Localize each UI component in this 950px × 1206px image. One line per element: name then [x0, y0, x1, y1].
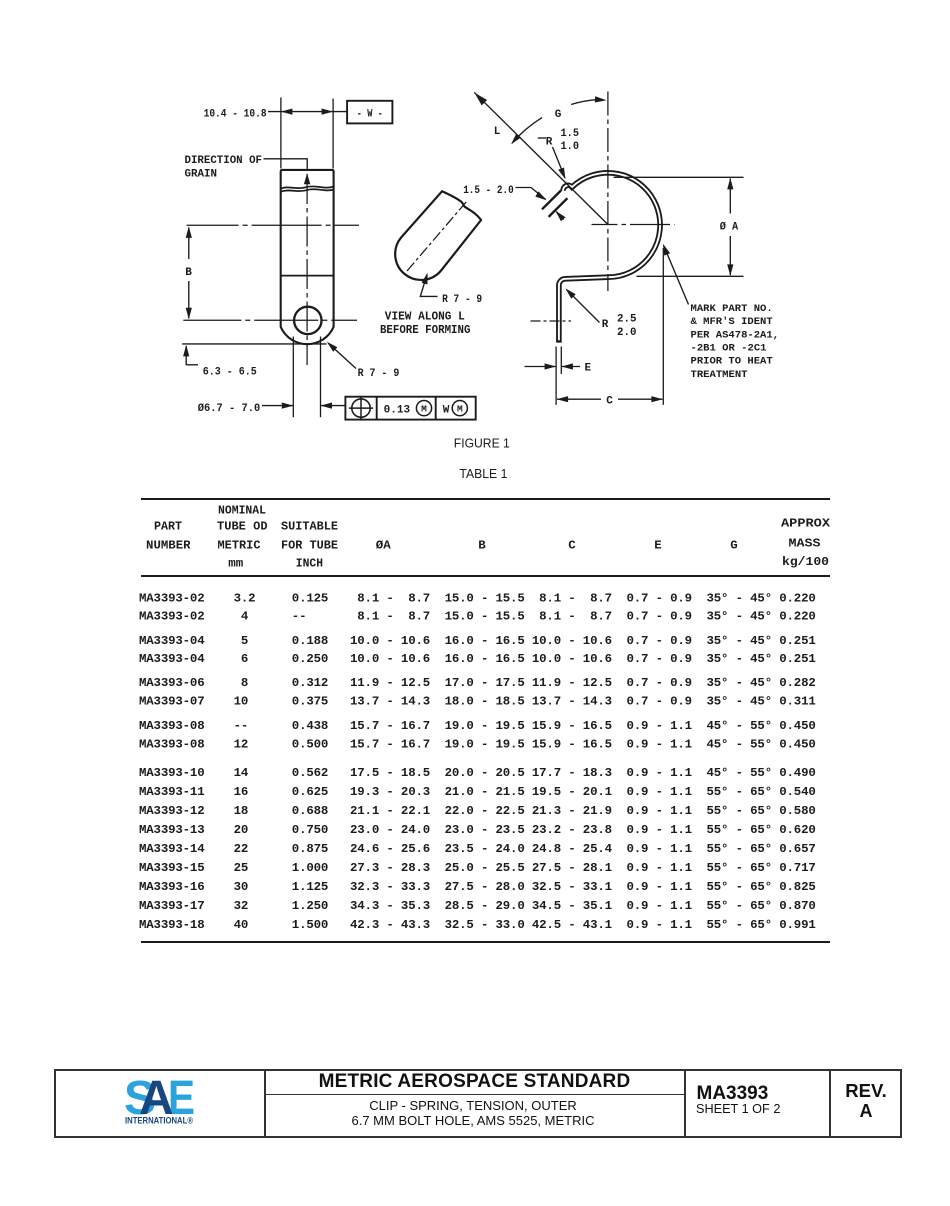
svg-text:-2B1 OR -2C1: -2B1 OR -2C1 [691, 343, 767, 355]
svg-text:2.0: 2.0 [617, 327, 637, 339]
svg-text:INTERNATIONAL®: INTERNATIONAL® [125, 1116, 193, 1126]
svg-text:6.3 - 6.5: 6.3 - 6.5 [203, 366, 257, 378]
svg-text:MA3393-02 3.2 0.125: MA3393-02 3.2 0.125 8.1 - 8.7 15.0 - 15.… [139, 591, 816, 605]
svg-text:1.5: 1.5 [561, 128, 580, 140]
svg-text:MARK PART NO.: MARK PART NO. [691, 303, 773, 315]
svg-text:MA3393-10 14 0.562 1: MA3393-10 14 0.562 17.5 - 18.5 20.0 - 20… [139, 766, 816, 780]
svg-text:R 7 - 9: R 7 - 9 [358, 368, 400, 380]
svg-text:ØA: ØA [376, 539, 392, 553]
svg-text:INCH: INCH [296, 556, 323, 570]
svg-text:1.5 - 2.0: 1.5 - 2.0 [463, 185, 514, 197]
svg-text:MA3393-04 6 0.250 1: MA3393-04 6 0.250 10.0 - 10.6 16.0 - 16.… [139, 652, 816, 666]
svg-text:PRIOR TO HEAT: PRIOR TO HEAT [691, 356, 773, 368]
svg-text:MA3393-13 20 0.750 2: MA3393-13 20 0.750 23.0 - 24.0 23.0 - 23… [139, 823, 816, 837]
svg-text:METRIC: METRIC [218, 539, 262, 553]
svg-text:L: L [494, 126, 501, 138]
svg-text:PART: PART [154, 520, 183, 534]
svg-text:TREATMENT: TREATMENT [691, 369, 748, 381]
svg-text:MA3393-04 5 0.188 1: MA3393-04 5 0.188 10.0 - 10.6 16.0 - 16.… [139, 634, 816, 648]
svg-text:mm: mm [228, 556, 243, 570]
svg-text:Ø A: Ø A [720, 222, 739, 234]
svg-text:NUMBER: NUMBER [146, 539, 191, 553]
svg-text:BEFORE FORMING: BEFORE FORMING [380, 324, 471, 337]
svg-text:TABLE 1: TABLE 1 [459, 466, 507, 481]
svg-text:MA3393-17 32 1.250 3: MA3393-17 32 1.250 34.3 - 35.3 28.5 - 29… [139, 899, 816, 913]
svg-text:0.13: 0.13 [384, 405, 411, 417]
svg-text:kg/100: kg/100 [782, 555, 829, 569]
svg-text:10.4 - 10.8: 10.4 - 10.8 [204, 109, 267, 121]
svg-text:FIGURE 1: FIGURE 1 [454, 436, 510, 451]
svg-text:E: E [585, 363, 592, 375]
svg-text:G: G [555, 109, 562, 121]
svg-text:MA3393-18 40 1.500 4: MA3393-18 40 1.500 42.3 - 43.3 32.5 - 33… [139, 918, 816, 932]
svg-text:MA3393-02 4 --: MA3393-02 4 -- 8.1 - 8.7 15.0 - 15.5 8.1… [139, 609, 816, 623]
svg-text:GRAIN: GRAIN [185, 169, 218, 181]
svg-text:& MFR'S IDENT: & MFR'S IDENT [691, 316, 773, 328]
svg-text:PER AS478-2A1,: PER AS478-2A1, [691, 329, 780, 341]
svg-text:E: E [654, 539, 661, 553]
svg-text:G: G [730, 539, 737, 553]
svg-text:2.5: 2.5 [617, 314, 637, 326]
svg-text:R: R [546, 137, 553, 149]
svg-text:SUITABLE: SUITABLE [281, 520, 338, 534]
svg-text:MA3393-08 -- 0.438 1: MA3393-08 -- 0.438 15.7 - 16.7 19.0 - 19… [139, 719, 816, 733]
svg-text:M: M [421, 404, 427, 415]
svg-text:R: R [602, 319, 609, 331]
svg-text:MA3393-15 25 1.000 2: MA3393-15 25 1.000 27.3 - 28.3 25.0 - 25… [139, 861, 816, 875]
svg-text:FOR TUBE: FOR TUBE [281, 539, 338, 553]
svg-text:VIEW ALONG L: VIEW ALONG L [385, 311, 465, 324]
svg-text:W: W [443, 405, 450, 417]
svg-text:MASS: MASS [789, 537, 822, 551]
svg-text:1.0: 1.0 [561, 141, 580, 153]
svg-text:B: B [185, 267, 192, 279]
svg-text:B: B [478, 539, 486, 553]
svg-text:MA3393-06 8 0.312 1: MA3393-06 8 0.312 11.9 - 12.5 17.0 - 17.… [139, 676, 816, 690]
svg-text:Ø6.7 - 7.0: Ø6.7 - 7.0 [198, 403, 260, 415]
svg-text:MA3393-11 16 0.625 1: MA3393-11 16 0.625 19.3 - 20.3 21.0 - 21… [139, 785, 816, 799]
svg-text:NOMINAL: NOMINAL [218, 504, 266, 518]
svg-text:MA3393-07 10 0.375 1: MA3393-07 10 0.375 13.7 - 14.3 18.0 - 18… [139, 694, 816, 708]
svg-text:APPROX: APPROX [781, 517, 831, 531]
svg-text:R 7 - 9: R 7 - 9 [442, 294, 482, 306]
svg-text:MA3393-16 30 1.125 3: MA3393-16 30 1.125 32.3 - 33.3 27.5 - 28… [139, 880, 816, 894]
svg-text:C: C [568, 539, 576, 553]
svg-text:- W -: - W - [357, 108, 383, 120]
svg-text:C: C [606, 395, 613, 407]
svg-text:MA3393-12 18 0.688 2: MA3393-12 18 0.688 21.1 - 22.1 22.0 - 22… [139, 804, 816, 818]
svg-text:DIRECTION OF: DIRECTION OF [185, 155, 263, 167]
svg-text:MA3393-14 22 0.875 2: MA3393-14 22 0.875 24.6 - 25.6 23.5 - 24… [139, 842, 816, 856]
svg-text:MA3393-08 12 0.500 1: MA3393-08 12 0.500 15.7 - 16.7 19.0 - 19… [139, 737, 816, 751]
svg-text:TUBE OD: TUBE OD [217, 520, 268, 534]
svg-text:M: M [457, 404, 463, 415]
